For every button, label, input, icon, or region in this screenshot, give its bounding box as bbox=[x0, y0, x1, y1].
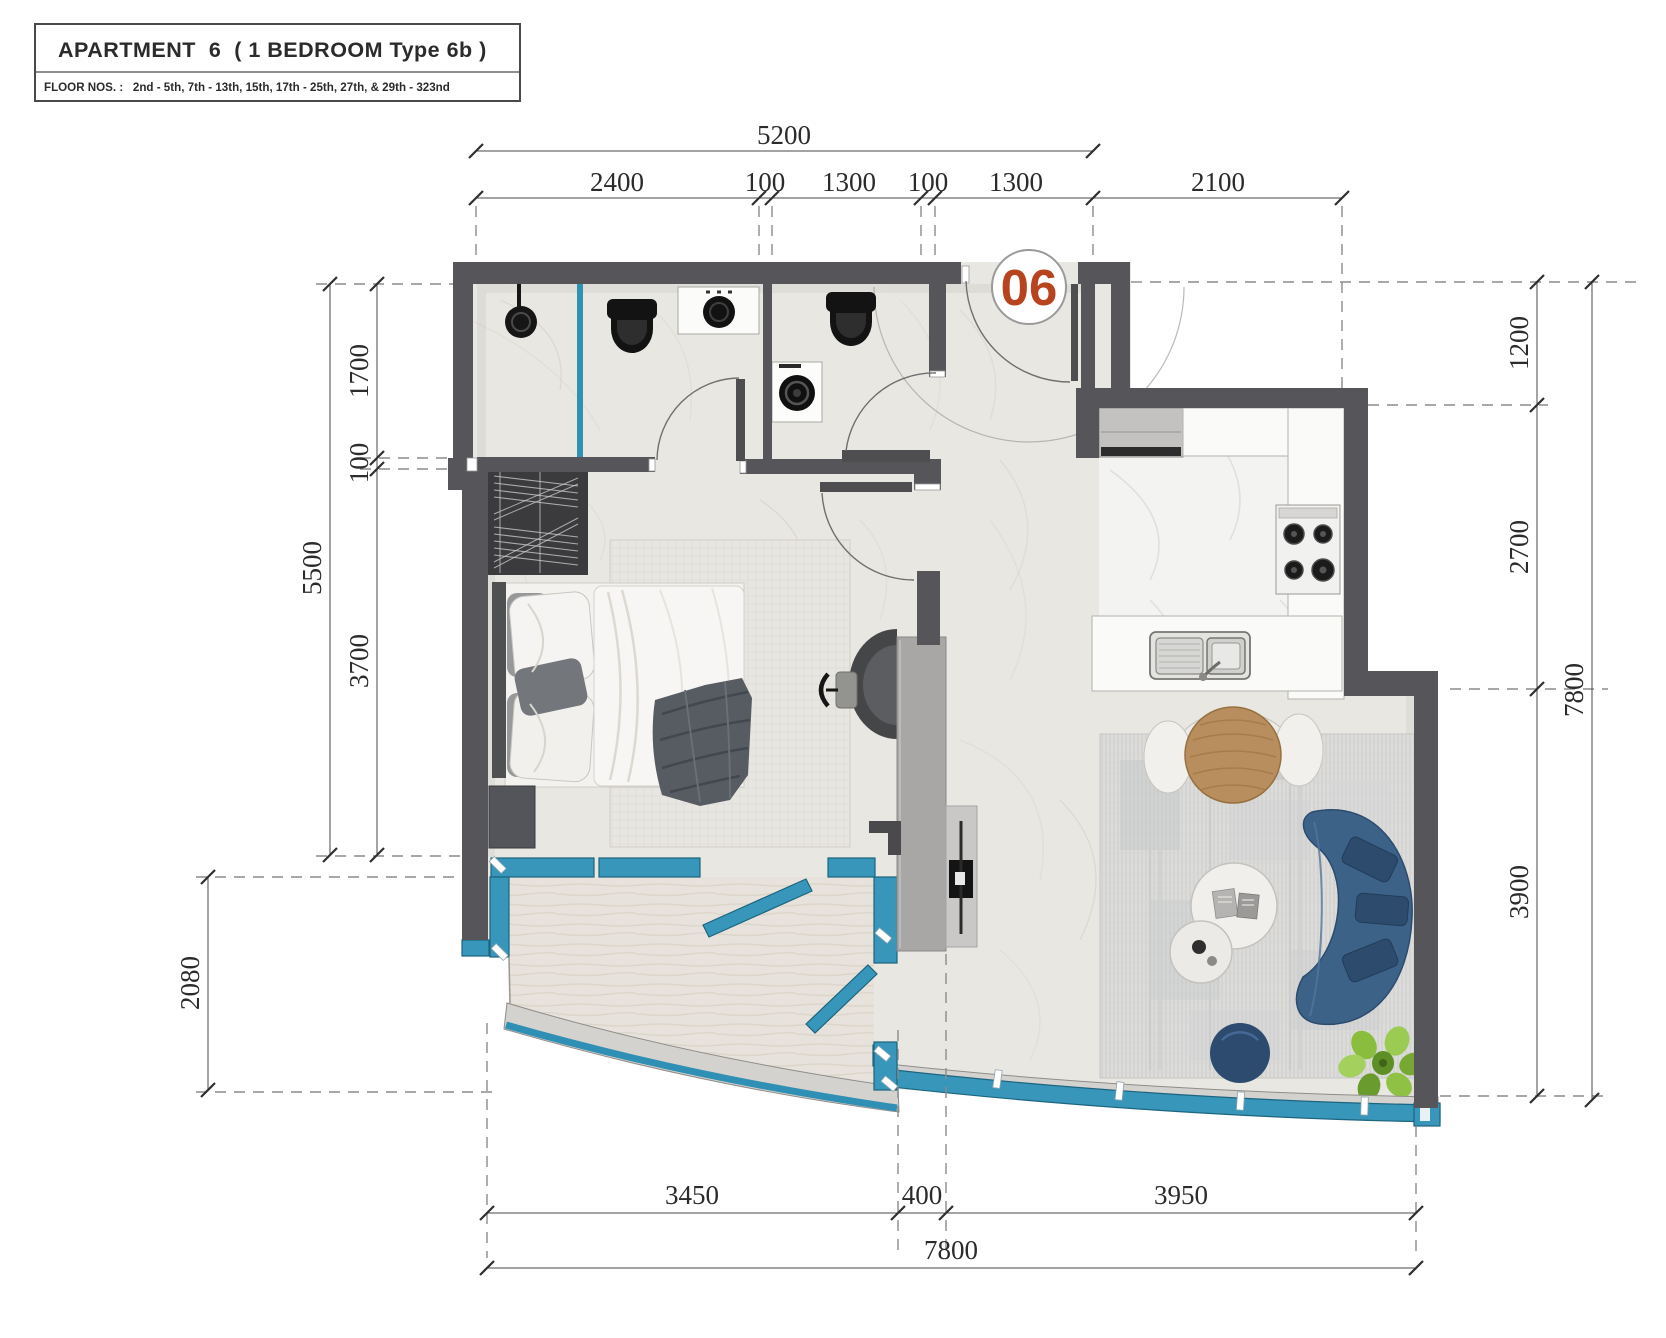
svg-text:3950: 3950 bbox=[1154, 1180, 1208, 1210]
svg-text:3900: 3900 bbox=[1504, 865, 1534, 919]
svg-text:400: 400 bbox=[902, 1180, 943, 1210]
svg-text:7800: 7800 bbox=[1559, 663, 1589, 717]
svg-text:5200: 5200 bbox=[757, 120, 811, 150]
svg-text:2700: 2700 bbox=[1504, 520, 1534, 574]
svg-text:1200: 1200 bbox=[1504, 316, 1534, 370]
svg-text:100: 100 bbox=[908, 167, 949, 197]
svg-text:100: 100 bbox=[344, 443, 374, 484]
svg-text:APARTMENT 6 ( 1 BEDROOM Type: APARTMENT 6 ( 1 BEDROOM Type 6b ) bbox=[58, 38, 487, 62]
svg-text:2080: 2080 bbox=[175, 956, 205, 1010]
svg-text:5500: 5500 bbox=[297, 541, 327, 595]
svg-text:1300: 1300 bbox=[989, 167, 1043, 197]
svg-text:3700: 3700 bbox=[344, 634, 374, 688]
svg-text:1700: 1700 bbox=[344, 344, 374, 398]
svg-text:FLOOR NOS. : 2nd - 5th, 7th: FLOOR NOS. : 2nd - 5th, 7th - 13th, 15th… bbox=[44, 81, 450, 94]
svg-text:2100: 2100 bbox=[1191, 167, 1245, 197]
svg-text:06: 06 bbox=[1001, 259, 1058, 316]
svg-text:7800: 7800 bbox=[924, 1235, 978, 1265]
svg-text:1300: 1300 bbox=[822, 167, 876, 197]
svg-text:100: 100 bbox=[745, 167, 786, 197]
svg-text:2400: 2400 bbox=[590, 167, 644, 197]
svg-text:3450: 3450 bbox=[665, 1180, 719, 1210]
